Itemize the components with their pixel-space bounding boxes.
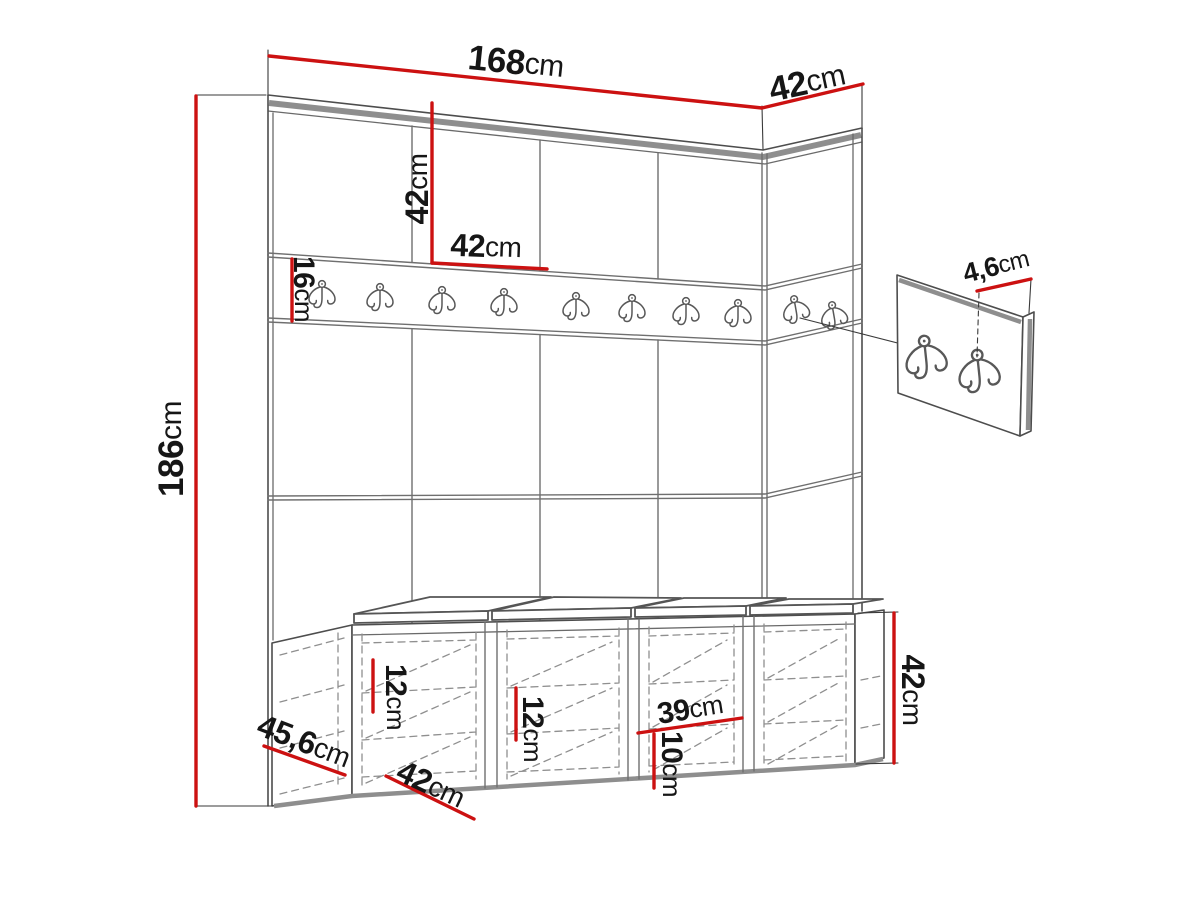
detail-panel-side-band xyxy=(1028,319,1030,430)
wall-corner-seam xyxy=(762,153,767,618)
furniture-dimension-diagram: 168cm 42cm 186cm 42cm 42cm 16cm 4,6cm 42… xyxy=(0,0,1200,900)
row-seam-2 xyxy=(268,476,862,500)
rail-top-seam-2 xyxy=(268,257,862,290)
label-side-panel-width: 42cm xyxy=(765,55,848,109)
label-shelf-gap-right: 10cm xyxy=(656,731,689,797)
diagram-canvas: 168cm 42cm 186cm 42cm 42cm 16cm 4,6cm 42… xyxy=(0,0,1200,900)
cushion-front xyxy=(354,611,488,623)
coat-hook-icon xyxy=(819,300,849,331)
coat-hook-icon xyxy=(563,293,589,320)
rail-bottom-seam-2 xyxy=(268,322,862,345)
hook-detail-panel xyxy=(800,275,1034,436)
label-panel-width: 42cm xyxy=(450,227,522,265)
label-shelf-gap-middle: 12cm xyxy=(517,696,550,762)
rail-bottom-seam xyxy=(268,318,862,341)
bench-right-face xyxy=(855,610,884,764)
label-panel-height: 42cm xyxy=(399,154,435,225)
coat-hook-icon xyxy=(429,287,455,314)
rail-top-seam xyxy=(268,253,862,286)
cushion-front xyxy=(750,604,853,615)
coat-hook-icon xyxy=(491,289,517,316)
label-shelf-gap-left: 12cm xyxy=(380,664,413,730)
cushion-front xyxy=(635,606,746,617)
row-seam xyxy=(268,472,862,496)
coat-hook-icon xyxy=(619,295,645,322)
label-total-height: 186cm xyxy=(152,401,191,497)
ext-hook-dim xyxy=(1029,279,1031,313)
coat-hook-icon xyxy=(673,298,699,325)
label-rail-height: 16cm xyxy=(288,256,321,322)
ext-width-right xyxy=(762,106,763,149)
panel-vertical-seams xyxy=(412,126,658,623)
coat-hook-icon xyxy=(367,284,393,311)
wall-top-band xyxy=(269,103,861,157)
coat-hook-icon xyxy=(725,300,751,327)
label-bench-height: 42cm xyxy=(895,655,931,726)
shoe-bench xyxy=(272,597,884,806)
cushion-front xyxy=(492,608,631,620)
